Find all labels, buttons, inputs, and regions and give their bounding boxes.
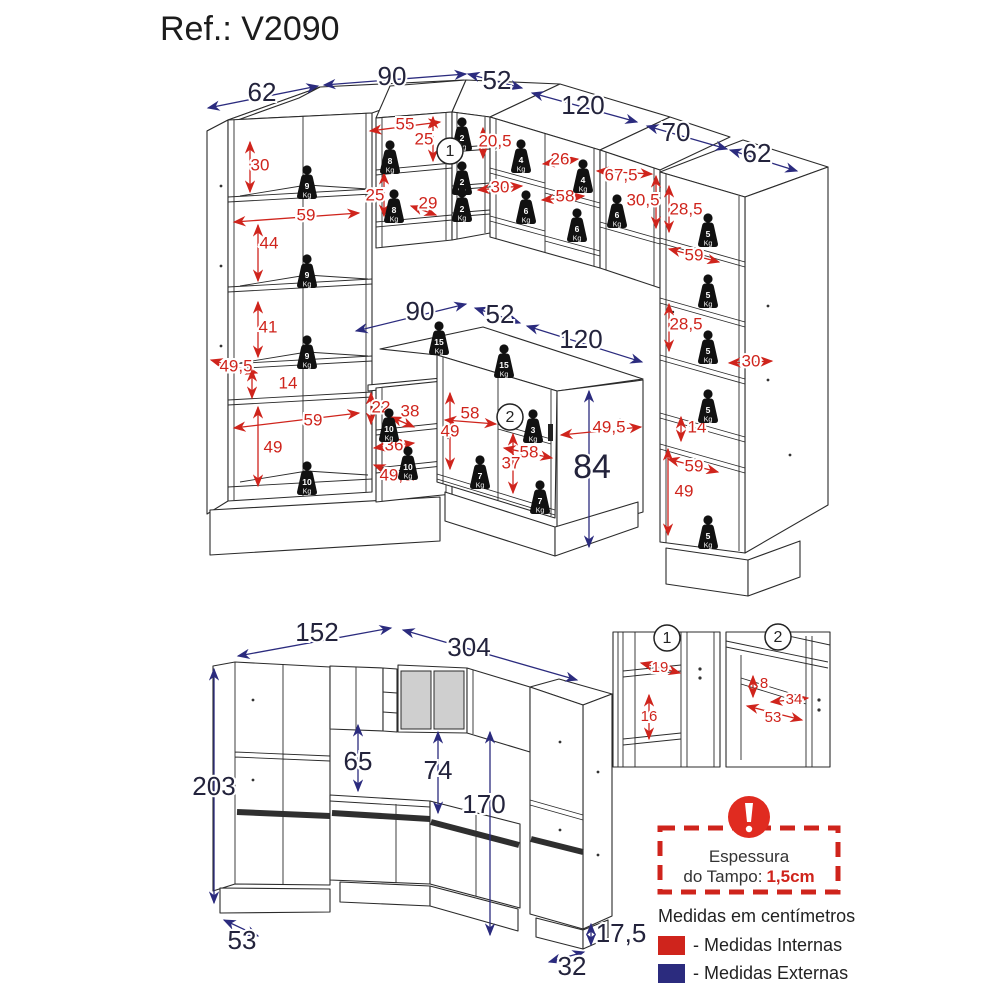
dim-label-i: 38 [401, 401, 420, 420]
warning-box: Espessura do Tampo:1,5cm [660, 796, 838, 892]
dim-label-i: 41 [259, 317, 278, 336]
weight-unit: Kg [522, 218, 531, 225]
dim-label-i: 20,5 [478, 131, 511, 150]
dim-label-e: 17,5 [596, 918, 647, 948]
dim-label-e: 65 [344, 746, 373, 776]
dim-label-i: 58 [520, 442, 539, 461]
warning-line1: Espessura [709, 847, 790, 866]
weight-unit: Kg [704, 302, 713, 309]
dim-label-e: 62 [248, 77, 277, 107]
dim-label-i: 30,5 [626, 190, 659, 209]
weight-value: 2 [460, 204, 465, 214]
cabinet-side-panel [207, 120, 228, 514]
warning-value: 1,5cm [766, 867, 814, 886]
dim-label-i: 58 [556, 186, 575, 205]
weight-value: 5 [706, 290, 711, 300]
weight-value: 2 [460, 177, 465, 187]
dim-label-i: 59 [685, 245, 704, 264]
weight-value: 3 [531, 425, 536, 435]
dim-label-i: 59 [685, 456, 704, 475]
weight-unit: Kg [385, 436, 394, 443]
dim-label-e: 53 [228, 925, 257, 955]
dim-label-e: 84 [573, 448, 611, 486]
detail-box-2 [726, 632, 830, 767]
dim-label-i: 44 [260, 233, 279, 252]
weight-unit: Kg [573, 236, 582, 243]
weight-value: 8 [392, 205, 397, 215]
weight-unit: Kg [390, 217, 399, 224]
weight-value: 7 [478, 471, 483, 481]
dim-label-i: 30 [742, 351, 761, 370]
weight-value: 6 [575, 224, 580, 234]
weight-unit: Kg [435, 349, 444, 356]
weight-unit: Kg [303, 282, 312, 289]
plinth-side [748, 541, 800, 596]
internal-color-swatch [658, 936, 685, 955]
dim-label-i: 19 [652, 659, 669, 676]
dim-label-e: 152 [295, 617, 338, 647]
circled-reference: 2 [497, 404, 523, 430]
weight-value: 5 [706, 229, 711, 239]
alert-icon-dot [746, 826, 752, 832]
weight-value: 10 [302, 477, 312, 487]
dim-label-e: 74 [424, 755, 453, 785]
weight-unit: Kg [613, 222, 622, 229]
dim-label-i: 16 [641, 708, 658, 725]
dim-label-i: 25 [415, 129, 434, 148]
legend-external-label: - Medidas Externas [693, 963, 848, 983]
technical-drawing-page: Ref.: V2090 [0, 0, 1000, 1000]
dim-label-e: 304 [447, 632, 490, 662]
dim-label-i: 49 [264, 437, 283, 456]
weight-value: 5 [706, 405, 711, 415]
dim-label-i: 59 [297, 205, 316, 224]
dim-label-e: 52 [486, 299, 515, 329]
dim-label-e: 62 [743, 138, 772, 168]
external-color-swatch [658, 964, 685, 983]
dim-label-i: 37 [502, 453, 521, 472]
weight-value: 2 [460, 133, 465, 143]
dim-label-i: 55 [396, 114, 415, 133]
weight-value: 9 [305, 181, 310, 191]
plinth [666, 548, 748, 596]
circled-reference-number: 1 [446, 143, 455, 160]
drawing-canvas: Ref.: V2090 [0, 0, 1000, 1000]
plinth [210, 497, 440, 555]
weight-value: 5 [706, 346, 711, 356]
plinth [340, 882, 430, 906]
dim-label-e: 203 [192, 771, 235, 801]
weight-unit: Kg [404, 474, 413, 481]
weight-unit: Kg [704, 241, 713, 248]
weight-unit: Kg [579, 187, 588, 194]
dim-label-i: 28,5 [669, 199, 702, 218]
weight-value: 15 [434, 337, 444, 347]
weight-unit: Kg [529, 437, 538, 444]
legend: Medidas em centímetros - Medidas Interna… [658, 906, 855, 983]
assembled-view [213, 662, 612, 949]
dim-label-i: 53 [765, 709, 782, 726]
dim-label-i: 34 [786, 691, 803, 708]
dim-label-i: 14 [279, 373, 298, 392]
units-note: Medidas em centímetros [658, 906, 855, 926]
legend-internal-label: - Medidas Internas [693, 935, 842, 955]
dim-label-e: 120 [561, 90, 604, 120]
assembled-upper-cabinets [330, 665, 530, 752]
weight-value: 6 [615, 210, 620, 220]
weight-value: 9 [305, 270, 310, 280]
drawer-gap [548, 424, 553, 441]
dim-label-i: 29 [419, 193, 438, 212]
circled-reference-number: 2 [774, 629, 783, 646]
glass-door [434, 671, 464, 729]
plinth [220, 888, 330, 913]
dim-label-e: 170 [462, 789, 505, 819]
dim-label-e: 120 [559, 324, 602, 354]
dim-label-i: 67,5 [604, 165, 637, 184]
circled-reference: 2 [765, 624, 791, 650]
weight-value: 4 [581, 175, 586, 185]
dim-label-e: 70 [662, 117, 691, 147]
weight-unit: Kg [303, 193, 312, 200]
dim-label-i: 30 [251, 155, 270, 174]
weight-value: 10 [403, 462, 413, 472]
warning-line2: do Tampo:1,5cm [683, 867, 814, 886]
dim-label-i: 59 [304, 410, 323, 429]
dim-label-i: 49 [441, 421, 460, 440]
dim-label-i: 8 [760, 675, 768, 692]
dim-label-e: 90 [378, 61, 407, 91]
weight-value: 4 [519, 155, 524, 165]
dim-label-i: 49 [675, 481, 694, 500]
weight-unit: Kg [500, 372, 509, 379]
weight-unit: Kg [704, 358, 713, 365]
glass-door [401, 671, 431, 729]
weight-unit: Kg [303, 363, 312, 370]
circled-reference-number: 2 [506, 409, 515, 426]
weight-unit: Kg [458, 216, 467, 223]
weight-value: 7 [538, 496, 543, 506]
circled-reference: 1 [437, 138, 463, 164]
dim-label-e: 32 [558, 951, 587, 981]
dim-label-e: 90 [406, 296, 435, 326]
weight-unit: Kg [517, 167, 526, 174]
dim-label-i: 25 [366, 185, 385, 204]
warning-line2-text: do Tampo: [683, 867, 762, 886]
weight-value: 10 [384, 424, 394, 434]
weight-unit: Kg [704, 543, 713, 550]
dim-label-e: 52 [483, 65, 512, 95]
weight-unit: Kg [476, 483, 485, 490]
detail-box-1 [613, 632, 720, 767]
weight-unit: Kg [386, 168, 395, 175]
weight-value: 5 [706, 531, 711, 541]
weight-value: 8 [388, 156, 393, 166]
weight-unit: Kg [536, 508, 545, 515]
weight-unit: Kg [303, 489, 312, 496]
page-title: Ref.: V2090 [160, 10, 340, 48]
dim-label-i: 30 [491, 177, 510, 196]
weight-value: 9 [305, 351, 310, 361]
assembled-right-tall-unit [530, 679, 612, 949]
dim-label-i: 49,5 [592, 417, 625, 436]
dim-label-i: 49,5 [219, 356, 252, 375]
circled-reference: 1 [654, 625, 680, 651]
circled-reference-number: 1 [663, 630, 672, 647]
weight-value: 15 [499, 360, 509, 370]
weight-value: 6 [524, 206, 529, 216]
weight-unit: Kg [704, 417, 713, 424]
dim-label-i: 58 [461, 403, 480, 422]
dim-label-i: 26 [551, 149, 570, 168]
dim-label-i: 28,5 [669, 314, 702, 333]
